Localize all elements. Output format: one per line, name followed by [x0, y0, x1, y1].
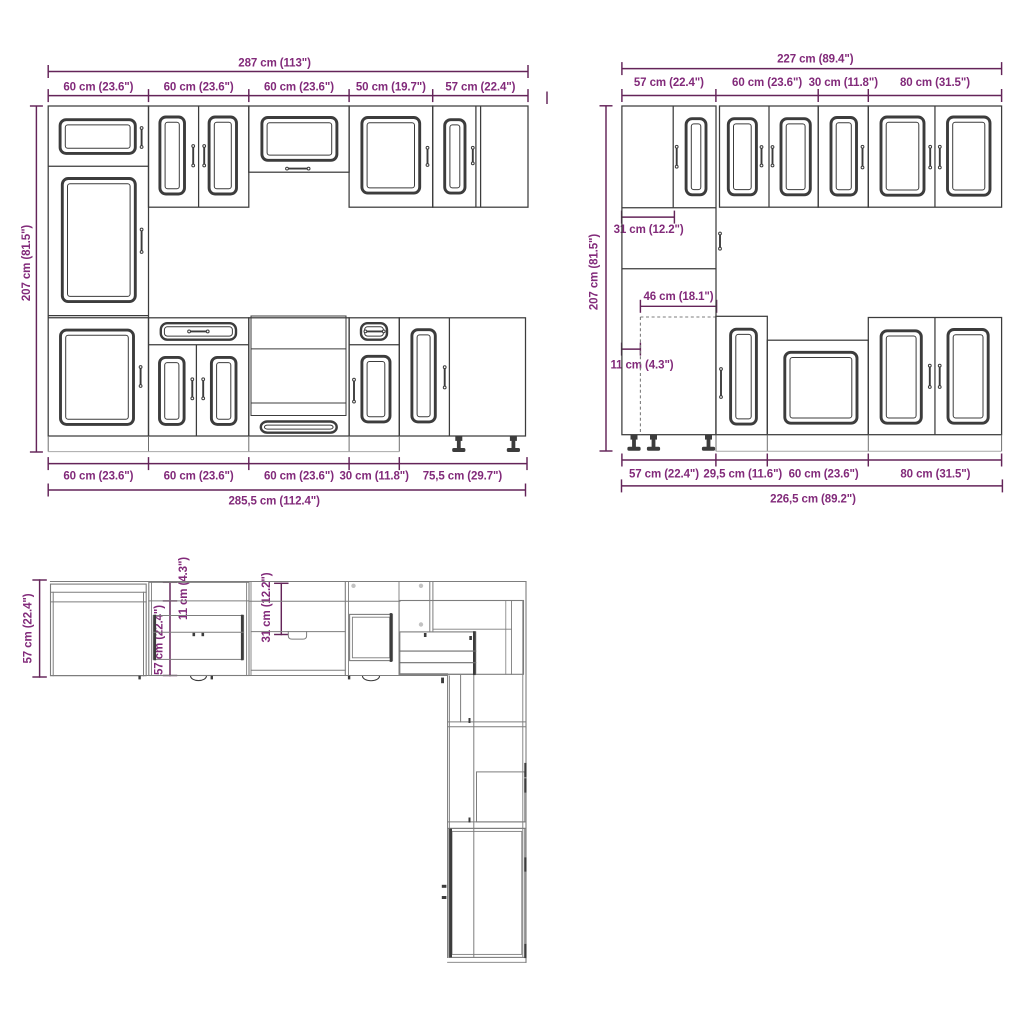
svg-text:11 cm (4.3"): 11 cm (4.3")	[178, 557, 190, 620]
svg-text:80 cm (31.5"): 80 cm (31.5")	[900, 468, 970, 480]
svg-text:285,5 cm (112.4"): 285,5 cm (112.4")	[229, 496, 321, 508]
svg-text:46 cm (18.1"): 46 cm (18.1")	[644, 291, 714, 303]
svg-text:60 cm (23.6"): 60 cm (23.6")	[789, 468, 859, 480]
svg-text:60 cm (23.6"): 60 cm (23.6")	[164, 81, 234, 93]
svg-text:60 cm (23.6"): 60 cm (23.6")	[63, 471, 133, 483]
svg-text:227 cm (89.4"): 227 cm (89.4")	[777, 54, 854, 66]
svg-text:57 cm (22.4"): 57 cm (22.4")	[23, 593, 35, 663]
svg-text:207 cm (81.5"): 207 cm (81.5")	[589, 234, 601, 311]
svg-text:226,5 cm (89.2"): 226,5 cm (89.2")	[770, 494, 856, 506]
svg-text:60 cm (23.6"): 60 cm (23.6")	[63, 81, 133, 93]
svg-text:287 cm (113"): 287 cm (113")	[238, 58, 311, 70]
svg-text:50 cm (19.7"): 50 cm (19.7")	[356, 81, 426, 93]
svg-text:11 cm (4.3"): 11 cm (4.3")	[610, 360, 673, 372]
svg-text:60 cm (23.6"): 60 cm (23.6")	[264, 81, 334, 93]
svg-text:75,5 cm (29.7"): 75,5 cm (29.7")	[423, 471, 503, 483]
svg-text:57 cm (22.4"): 57 cm (22.4")	[445, 81, 515, 93]
svg-text:60 cm (23.6"): 60 cm (23.6")	[732, 77, 802, 89]
svg-text:30 cm (11.8"): 30 cm (11.8")	[340, 471, 410, 483]
svg-text:31 cm (12.2"): 31 cm (12.2")	[614, 224, 684, 236]
svg-text:207 cm (81.5"): 207 cm (81.5")	[21, 225, 33, 302]
svg-text:57 cm (22.4"): 57 cm (22.4")	[629, 468, 699, 480]
svg-text:80 cm (31.5"): 80 cm (31.5")	[900, 77, 970, 89]
svg-text:60 cm (23.6"): 60 cm (23.6")	[164, 471, 234, 483]
svg-text:60 cm (23.6"): 60 cm (23.6")	[264, 471, 334, 483]
svg-text:29,5 cm (11.6"): 29,5 cm (11.6")	[703, 468, 782, 480]
svg-text:57 cm (22.4"): 57 cm (22.4")	[634, 77, 704, 89]
svg-text:30 cm (11.8"): 30 cm (11.8")	[809, 77, 879, 89]
